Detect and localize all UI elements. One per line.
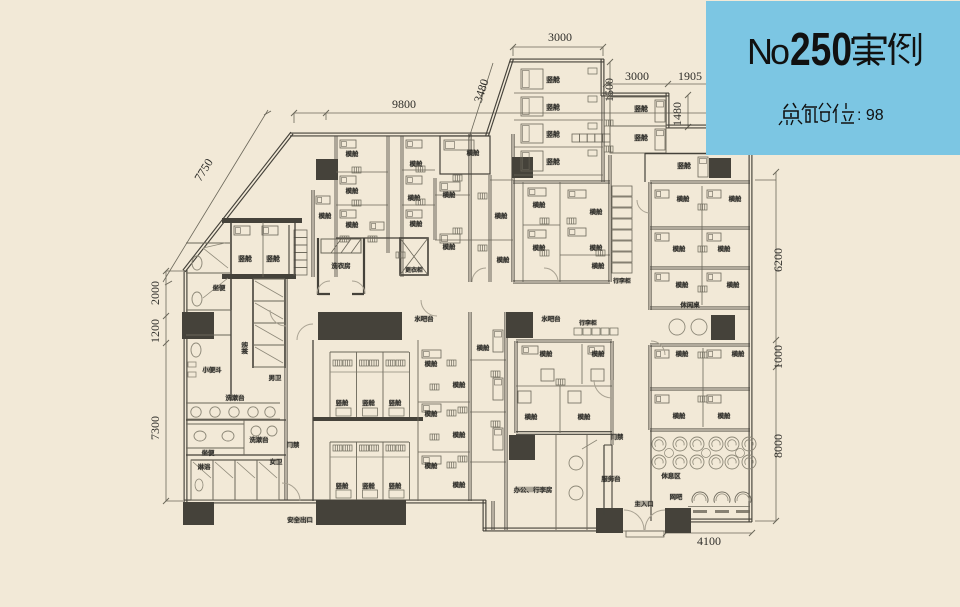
svg-text:竖舱: 竖舱: [389, 398, 403, 407]
svg-text:竖舱: 竖舱: [634, 104, 649, 113]
svg-text:模舱: 模舱: [425, 461, 439, 470]
svg-text:竖舱: 竖舱: [546, 157, 561, 166]
svg-text:竖舱: 竖舱: [546, 130, 561, 139]
svg-text:行李柜: 行李柜: [578, 319, 597, 327]
svg-text:门禁: 门禁: [611, 432, 625, 441]
svg-text:竖舱: 竖舱: [546, 103, 561, 112]
svg-text:横舱: 横舱: [495, 211, 509, 220]
svg-text:模舱: 模舱: [718, 244, 732, 253]
svg-text:3000: 3000: [625, 69, 649, 83]
svg-text:3000: 3000: [548, 30, 572, 44]
svg-text:竖舱: 竖舱: [238, 254, 253, 263]
svg-text:水吧台: 水吧台: [541, 314, 561, 323]
svg-text:模舱: 模舱: [425, 359, 439, 368]
svg-text:安全出口: 安全出口: [287, 515, 313, 524]
svg-text:横舱: 横舱: [525, 412, 539, 421]
svg-text:模舱: 模舱: [540, 349, 554, 358]
svg-text:250: 250: [790, 23, 852, 75]
svg-text:9800: 9800: [392, 97, 416, 111]
svg-text:横舱: 横舱: [729, 194, 743, 203]
svg-text:休闲桌: 休闲桌: [679, 300, 700, 309]
svg-text:No: No: [747, 31, 790, 72]
svg-text:1905: 1905: [678, 69, 702, 83]
svg-text:门禁: 门禁: [287, 440, 301, 449]
svg-text:模舱: 模舱: [346, 186, 360, 195]
svg-text:办公、行李房: 办公、行李房: [514, 485, 554, 494]
svg-text:模舱: 模舱: [676, 280, 690, 289]
svg-text:模舱: 模舱: [410, 219, 424, 228]
svg-text:洗漱台: 洗漱台: [249, 435, 269, 444]
svg-text:横舱: 横舱: [590, 207, 604, 216]
svg-text:横舱: 横舱: [592, 261, 606, 270]
svg-text:男卫: 男卫: [268, 374, 283, 382]
svg-text:模舱: 模舱: [346, 149, 360, 158]
svg-text:模舱: 模舱: [453, 480, 467, 489]
svg-text:模舱: 模舱: [718, 411, 732, 420]
svg-text:竖舱: 竖舱: [677, 161, 692, 170]
svg-text:淋浴: 淋浴: [198, 462, 212, 471]
svg-text:横舱: 横舱: [732, 349, 746, 358]
svg-text:: 98: : 98: [857, 107, 884, 124]
svg-text:模舱: 模舱: [453, 380, 467, 389]
svg-text:更衣柜: 更衣柜: [405, 266, 423, 274]
svg-text:模舱: 模舱: [578, 412, 592, 421]
svg-text:淋浴: 淋浴: [240, 341, 249, 355]
svg-text:横舱: 横舱: [727, 280, 741, 289]
svg-text:横舱: 横舱: [533, 200, 547, 209]
svg-text:横舱: 横舱: [408, 193, 422, 202]
svg-text:4100: 4100: [697, 534, 721, 548]
svg-text:横舱: 横舱: [673, 411, 687, 420]
svg-text:横舱: 横舱: [443, 190, 457, 199]
svg-text:竖舱: 竖舱: [336, 398, 350, 407]
svg-text:模舱: 模舱: [319, 211, 333, 220]
svg-text:1480: 1480: [670, 102, 684, 126]
svg-text:1200: 1200: [148, 319, 162, 343]
svg-text:模舱: 模舱: [497, 255, 511, 264]
svg-text:7300: 7300: [148, 416, 162, 440]
svg-text:模舱: 模舱: [425, 409, 439, 418]
svg-text:主入口: 主入口: [634, 499, 654, 508]
svg-text:横舱: 横舱: [477, 343, 491, 352]
svg-text:竖舱: 竖舱: [336, 481, 350, 490]
svg-text:休息区: 休息区: [660, 471, 681, 480]
svg-text:模舱: 模舱: [346, 220, 360, 229]
svg-text:女卫: 女卫: [270, 457, 284, 466]
svg-text:坐便: 坐便: [202, 448, 216, 457]
svg-text:横舱: 横舱: [467, 148, 481, 157]
svg-text:竖舱: 竖舱: [634, 133, 649, 142]
svg-text:模舱: 模舱: [592, 349, 606, 358]
svg-text:6200: 6200: [771, 248, 785, 272]
svg-text:小便斗: 小便斗: [201, 365, 222, 374]
svg-text:洗漱台: 洗漱台: [225, 393, 245, 402]
svg-text:竖舱: 竖舱: [362, 481, 376, 490]
svg-text:竖舱: 竖舱: [362, 398, 376, 407]
svg-text:模舱: 模舱: [443, 242, 457, 251]
svg-text:行李柜: 行李柜: [612, 277, 631, 285]
svg-text:模舱: 模舱: [673, 244, 687, 253]
svg-text:1000: 1000: [771, 345, 785, 369]
svg-text:模舱: 模舱: [453, 430, 467, 439]
svg-text:模舱: 模舱: [533, 243, 547, 252]
svg-text:竖舱: 竖舱: [266, 254, 281, 263]
svg-text:竖舱: 竖舱: [546, 75, 561, 84]
svg-text:坐便: 坐便: [213, 283, 227, 292]
svg-text:竖舱: 竖舱: [389, 481, 403, 490]
svg-text:网吧: 网吧: [670, 493, 684, 501]
svg-text:洗衣房: 洗衣房: [331, 261, 351, 270]
svg-text:2000: 2000: [148, 281, 162, 305]
svg-text:横舱: 横舱: [676, 349, 690, 358]
svg-text:服务台: 服务台: [601, 474, 621, 483]
svg-text:横舱: 横舱: [677, 194, 691, 203]
svg-text:8000: 8000: [771, 434, 785, 458]
